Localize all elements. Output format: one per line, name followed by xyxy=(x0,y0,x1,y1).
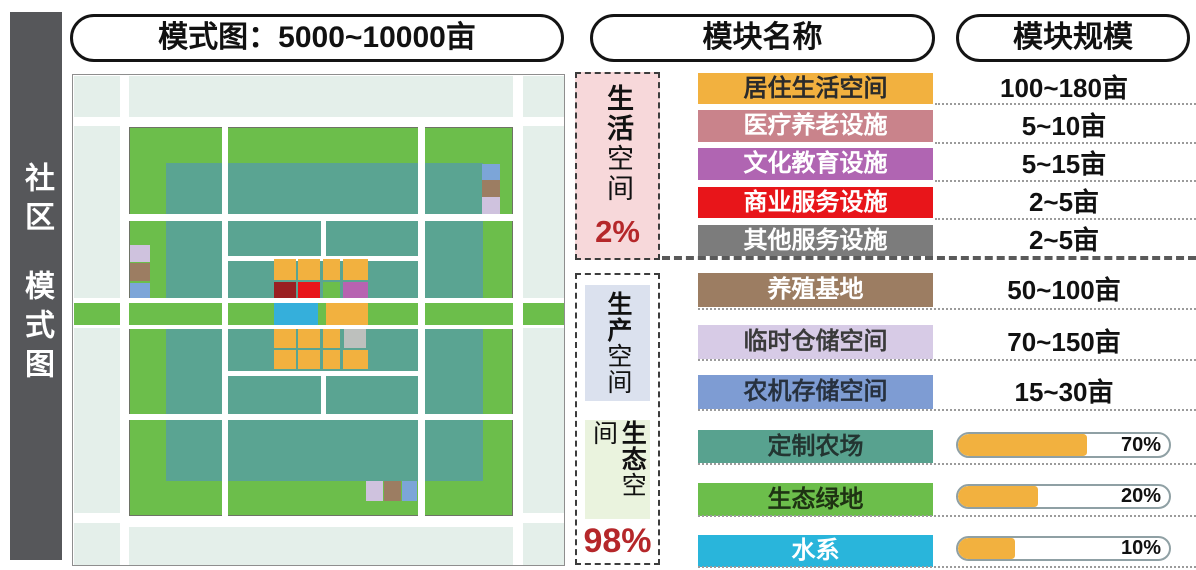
map-block-yellow xyxy=(298,329,320,348)
map-block-red xyxy=(298,282,320,298)
living-space-label-rest: 空间 xyxy=(603,144,633,204)
map-block-yellow xyxy=(323,350,340,369)
map-block-smallblue xyxy=(402,481,417,501)
progress-pill-green-land: 20% xyxy=(956,484,1171,509)
dotted-line xyxy=(935,180,1196,182)
map-block-lavender xyxy=(482,197,500,214)
module-value-machinery: 15~30亩 xyxy=(935,375,1193,409)
module-bar-machinery: 农机存储空间 xyxy=(698,375,933,409)
module-bar-commercial: 商业服务设施 xyxy=(698,187,933,218)
map-block-green xyxy=(323,282,340,298)
dotted-line xyxy=(698,409,1196,411)
living-space-label: 生活空间 xyxy=(577,84,658,204)
sidebar-title-part1: 社区 xyxy=(20,162,53,240)
progress-percent: 10% xyxy=(1121,538,1161,559)
module-value-breeding: 50~100亩 xyxy=(935,273,1193,307)
map-block-grayblock xyxy=(344,329,366,348)
living-space-percent: 2% xyxy=(577,214,658,250)
map-block-lavender xyxy=(130,245,150,262)
map-blocks-layer xyxy=(73,75,564,565)
sidebar-vertical-title: 社区模式图 xyxy=(10,162,62,560)
map-block-yellow xyxy=(298,350,320,369)
module-bar-storage: 临时仓储空间 xyxy=(698,325,933,359)
progress-pill-custom-farm: 70% xyxy=(956,432,1171,458)
module-value-residential: 100~180亩 xyxy=(935,73,1193,104)
group-box-production-ecology: 生产空间 生态空间 98% xyxy=(575,273,660,565)
dotted-line xyxy=(698,463,1196,465)
map-block-brown xyxy=(384,481,401,501)
module-bar-residential: 居住生活空间 xyxy=(698,73,933,104)
map-block-yellow xyxy=(298,259,320,280)
dotted-line xyxy=(935,103,1196,105)
map-block-yellow xyxy=(274,329,296,348)
map-block-brown xyxy=(482,180,500,197)
progress-percent: 70% xyxy=(1121,434,1161,456)
module-value-culture: 5~15亩 xyxy=(935,148,1193,180)
map-block-lavender xyxy=(366,481,383,501)
module-value-medical: 5~10亩 xyxy=(935,110,1193,142)
module-bar-custom-farm: 定制农场 xyxy=(698,430,933,463)
map-block-yellow xyxy=(274,259,296,280)
module-bar-green-land: 生态绿地 xyxy=(698,483,933,516)
group-box-living-space: 生活空间 2% xyxy=(575,72,660,260)
ecology-space-label: 生态空间 xyxy=(585,420,650,519)
progress-pill-water-system: 10% xyxy=(956,536,1171,561)
pattern-map xyxy=(72,74,565,566)
map-block-brown xyxy=(130,263,150,281)
map-block-darkred xyxy=(274,282,296,298)
production-label-bold: 生产 xyxy=(604,291,632,343)
module-bar-other-services: 其他服务设施 xyxy=(698,225,933,256)
ecology-label-bold: 生态 xyxy=(618,420,646,472)
production-space-label: 生产空间 xyxy=(585,285,650,401)
map-block-yellow xyxy=(323,329,340,348)
sidebar-title-part2: 模式图 xyxy=(20,270,53,387)
map-block-yellow xyxy=(343,350,368,369)
progress-fill xyxy=(958,486,1038,507)
progress-fill xyxy=(958,538,1015,559)
module-bar-culture: 文化教育设施 xyxy=(698,148,933,180)
module-scale-header-pill: 模块规模 xyxy=(956,14,1190,62)
module-bar-breeding: 养殖基地 xyxy=(698,273,933,307)
module-value-commercial: 2~5亩 xyxy=(935,187,1193,218)
progress-percent: 20% xyxy=(1121,486,1161,507)
map-block-smallblue xyxy=(130,283,150,298)
pattern-title-pill: 模式图：5000~10000亩 xyxy=(70,14,564,62)
map-block-yellow xyxy=(274,350,296,369)
dotted-line xyxy=(698,359,1196,361)
production-ecology-percent: 98% xyxy=(577,522,658,561)
module-bar-water-system: 水系 xyxy=(698,535,933,567)
map-block-yellow xyxy=(343,259,368,280)
module-value-storage: 70~150亩 xyxy=(935,325,1193,359)
sidebar-title-bar: 社区模式图 xyxy=(10,12,62,560)
community-pattern-infographic: 社区模式图 模式图：5000~10000亩 模块名称 模块规模 生活 xyxy=(0,0,1196,570)
module-name-header-pill: 模块名称 xyxy=(590,14,935,62)
dotted-line xyxy=(698,308,1196,310)
group-divider-dashed-line xyxy=(662,256,1196,260)
production-label-rest: 空间 xyxy=(604,343,632,395)
module-value-other-services: 2~5亩 xyxy=(935,225,1193,256)
progress-fill xyxy=(958,434,1087,456)
map-block-water xyxy=(274,303,318,325)
map-block-yellow xyxy=(326,303,368,325)
map-block-smallblue xyxy=(482,164,500,180)
dotted-line xyxy=(935,218,1196,220)
dotted-line xyxy=(698,515,1196,517)
map-block-yellow xyxy=(323,259,340,280)
dotted-line xyxy=(935,142,1196,144)
map-block-magenta xyxy=(343,282,368,298)
living-space-label-bold: 生活 xyxy=(603,84,633,144)
dotted-line xyxy=(698,566,1196,568)
module-bar-medical: 医疗养老设施 xyxy=(698,110,933,142)
